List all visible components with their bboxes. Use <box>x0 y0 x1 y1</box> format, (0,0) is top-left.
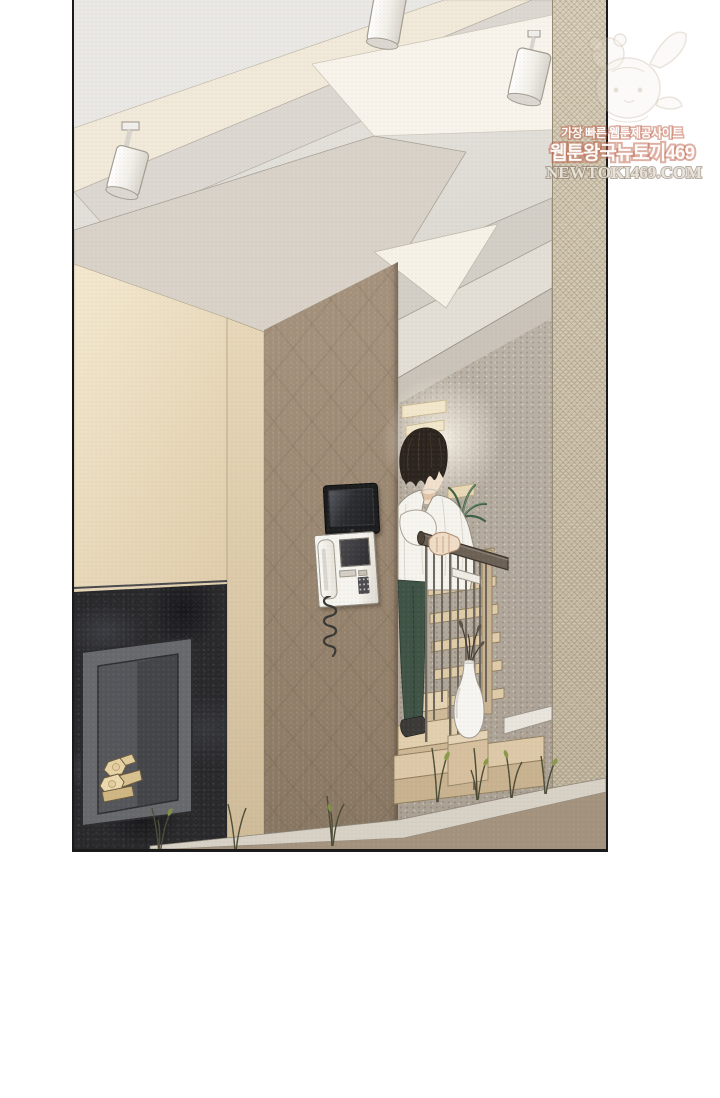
hand-on-rail <box>424 528 462 560</box>
floor <box>74 0 606 849</box>
page: 가장 빠른 웹툰제공사이트 웹툰왕국뉴토끼469 NEWTOKI469.COM <box>0 0 720 1098</box>
floor-sprout <box>530 734 562 796</box>
floor-sprout <box>422 742 454 804</box>
floor-sprout <box>144 796 176 852</box>
watermark-site-name: 웹툰왕국뉴토끼469 <box>546 138 698 165</box>
comic-panel <box>72 0 608 852</box>
white-vase <box>454 661 484 739</box>
floor-sprout <box>220 792 252 852</box>
floor-sprout <box>462 740 494 802</box>
floor-sprout <box>496 738 528 800</box>
site-watermark: 가장 빠른 웹툰제공사이트 웹툰왕국뉴토끼469 NEWTOKI469.COM <box>546 12 698 194</box>
watermark-site-url: NEWTOKI469.COM <box>546 163 698 183</box>
mascot-illustration <box>550 12 700 137</box>
floor-sprout <box>317 786 349 848</box>
